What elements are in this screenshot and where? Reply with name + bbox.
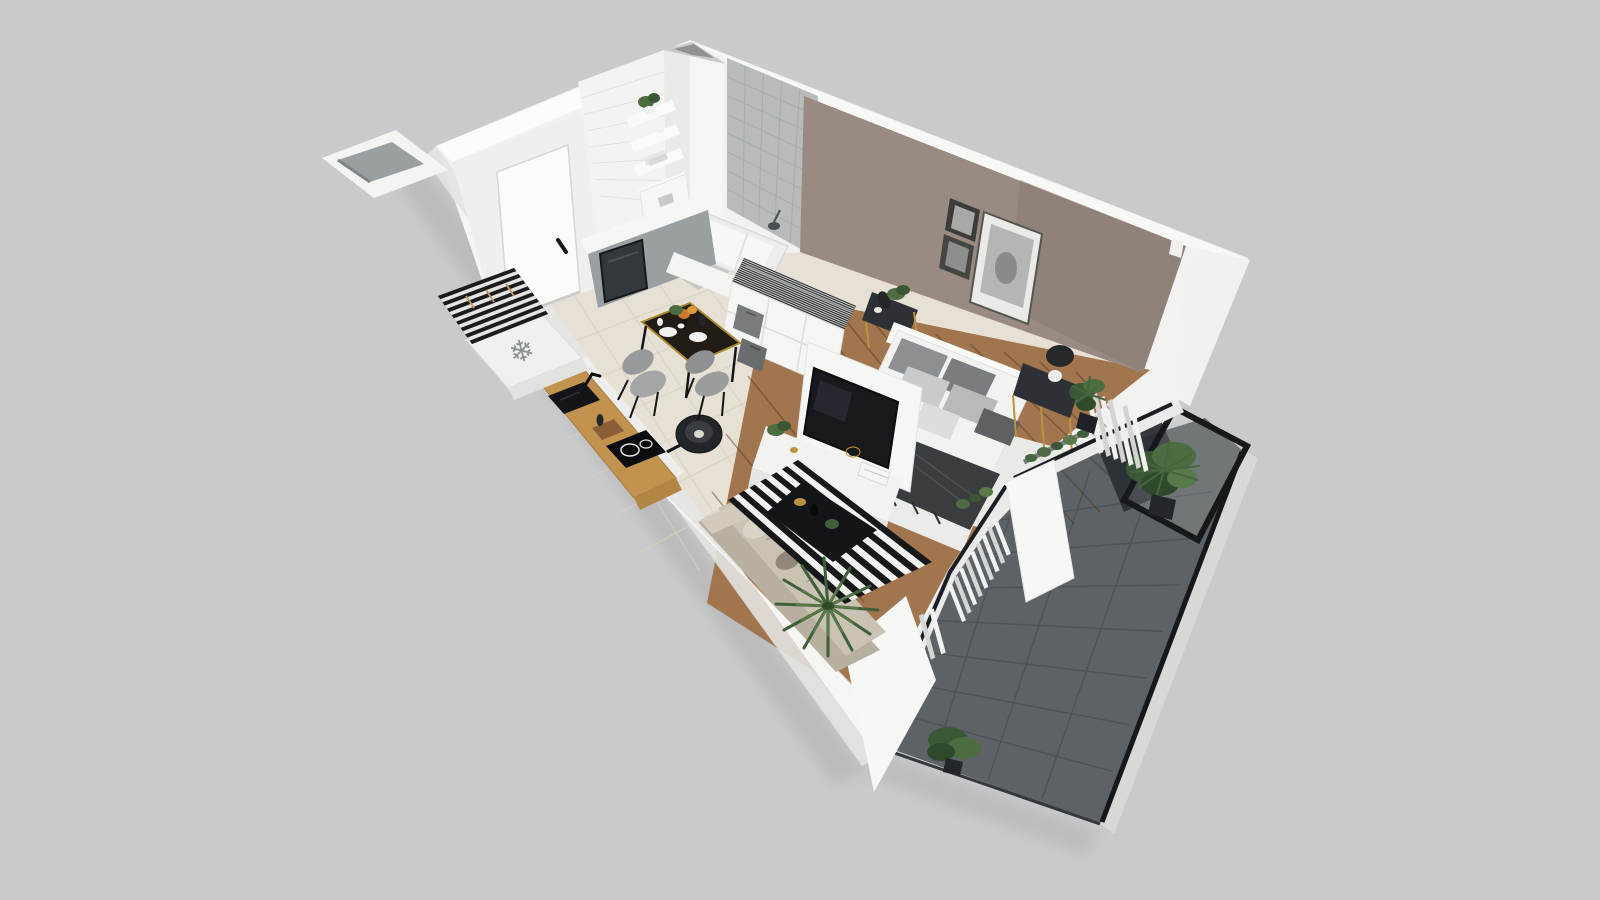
cabinet-gold-decor xyxy=(790,447,798,453)
dining-plate-1 xyxy=(659,327,677,337)
planter-tuft-7 xyxy=(969,494,981,502)
dining-greenery xyxy=(669,305,683,315)
kitchen-bottle xyxy=(597,414,604,426)
planter-tuft-4 xyxy=(1063,435,1077,445)
floor-plan-stage: ❄ xyxy=(0,0,1600,900)
coffee-table-bowl xyxy=(794,498,806,506)
planter-tuft-6 xyxy=(956,499,970,509)
planter-tuft-3 xyxy=(1051,442,1063,450)
dining-bottle xyxy=(699,314,706,326)
coffee-mug xyxy=(848,448,858,456)
shelf-plant-leaf-2 xyxy=(648,93,660,103)
cabinet-plant-leaf-2 xyxy=(777,421,791,431)
nightstand-1-vase xyxy=(874,307,882,313)
art-frame-large-figure xyxy=(995,252,1017,284)
table-lamp-base-sphere xyxy=(1048,370,1062,382)
shelf-plant-pot xyxy=(644,106,654,114)
dining-candle xyxy=(657,318,663,326)
bedroom-plant-leaf-3 xyxy=(1076,397,1096,411)
balcony-plant2-leaf-3 xyxy=(927,743,955,761)
scene-root: ❄ xyxy=(322,40,1258,856)
shelf-item xyxy=(656,127,664,133)
palm-center xyxy=(822,602,834,610)
planter-tuft-1 xyxy=(1025,454,1037,462)
coffee-table-vase xyxy=(810,504,818,516)
shower-fixture xyxy=(768,222,780,230)
dining-cup xyxy=(678,324,685,329)
nightstand-1-plant-leaf-2 xyxy=(896,285,910,295)
table-lamp-shade xyxy=(1046,345,1074,367)
floor-lamp-bulb xyxy=(694,430,704,438)
coffee-table-plant xyxy=(825,519,839,529)
dining-flowers-2 xyxy=(687,306,697,314)
apartment-3d-floor-plan: ❄ xyxy=(0,0,1600,900)
dining-plate-2 xyxy=(689,332,707,342)
planter-tuft-8 xyxy=(979,487,993,497)
planter-tuft-2 xyxy=(1037,447,1051,457)
